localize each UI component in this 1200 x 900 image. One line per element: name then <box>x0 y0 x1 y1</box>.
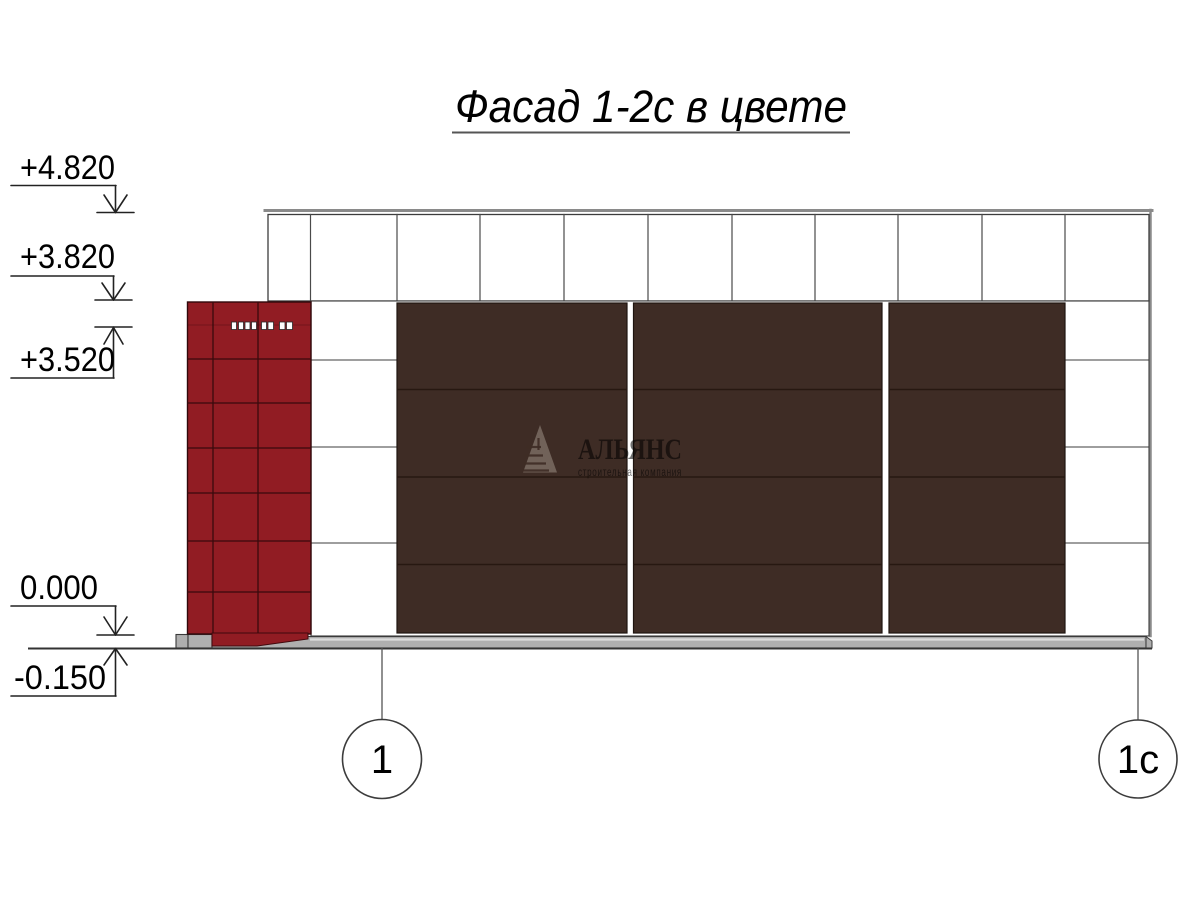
elevation-mark-4820: +4.820 <box>11 149 134 213</box>
title-block: Фасад 1-2с в цвете <box>452 81 850 133</box>
plinth-step-block <box>188 635 212 649</box>
elevation-marks: +4.820 +3.820 <box>11 149 134 697</box>
elevation-mark-3820: +3.820 <box>11 238 132 300</box>
red-tower <box>188 302 312 646</box>
red-tower-surface <box>188 302 312 634</box>
elevation-mark-minus0150: -0.150 <box>11 649 127 698</box>
watermark-company-name: АЛЬЯНС <box>578 433 682 466</box>
elevation-label: +4.820 <box>20 149 115 187</box>
red-tower-vents <box>232 322 293 330</box>
plinth-right-chamfer <box>1146 637 1152 649</box>
brown-panel-3 <box>889 303 1065 633</box>
elevation-label: -0.150 <box>14 659 106 697</box>
axis-label: 1с <box>1117 738 1159 782</box>
plinth-band <box>212 637 1146 649</box>
plinth-step-block-left <box>176 635 188 649</box>
axis-label: 1 <box>371 738 393 782</box>
page-title: Фасад 1-2с в цвете <box>455 81 847 132</box>
elevation-label: +3.820 <box>20 238 115 276</box>
axis-marker-1c: 1с <box>1099 648 1177 798</box>
elevation-mark-3520: +3.520 <box>11 327 132 379</box>
elevation-label: +3.520 <box>20 341 115 379</box>
brown-panels <box>397 303 1065 633</box>
parapet-panel-row <box>268 215 1149 302</box>
axis-marker-1: 1 <box>343 648 422 799</box>
elevation-mark-0000: 0.000 <box>11 569 134 635</box>
facade-drawing: Фасад 1-2с в цвете <box>0 0 1200 900</box>
watermark-tagline: строительная компания <box>578 467 682 479</box>
plinth <box>176 635 1152 649</box>
axis-markers: 1 1с <box>343 648 1178 799</box>
elevation-label: 0.000 <box>20 569 98 607</box>
facade-sheet: Фасад 1-2с в цвете <box>0 0 1200 900</box>
